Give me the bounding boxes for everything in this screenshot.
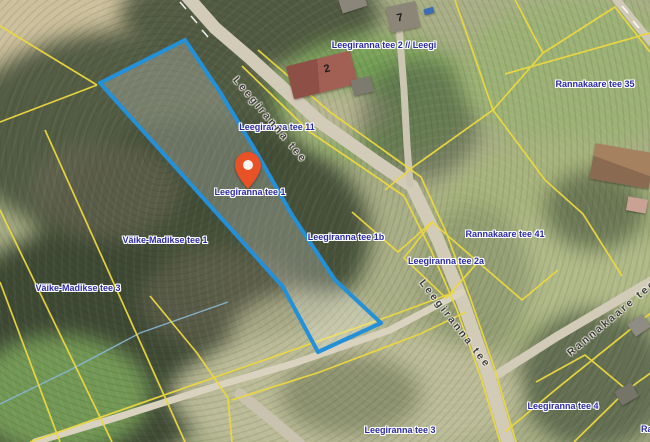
road-driveway-north [399, 26, 410, 184]
road-rannakaare-surface [498, 278, 650, 374]
road-ne-corner [612, 0, 650, 48]
map-canvas[interactable]: Leegiranna tee 2 // LeegiRannakaare tee … [0, 0, 650, 442]
location-pin[interactable] [233, 151, 263, 191]
road-branch-southwest [35, 292, 462, 442]
stream-line [0, 302, 228, 404]
location-pin-icon [233, 151, 263, 191]
road-stub-south [240, 394, 300, 442]
